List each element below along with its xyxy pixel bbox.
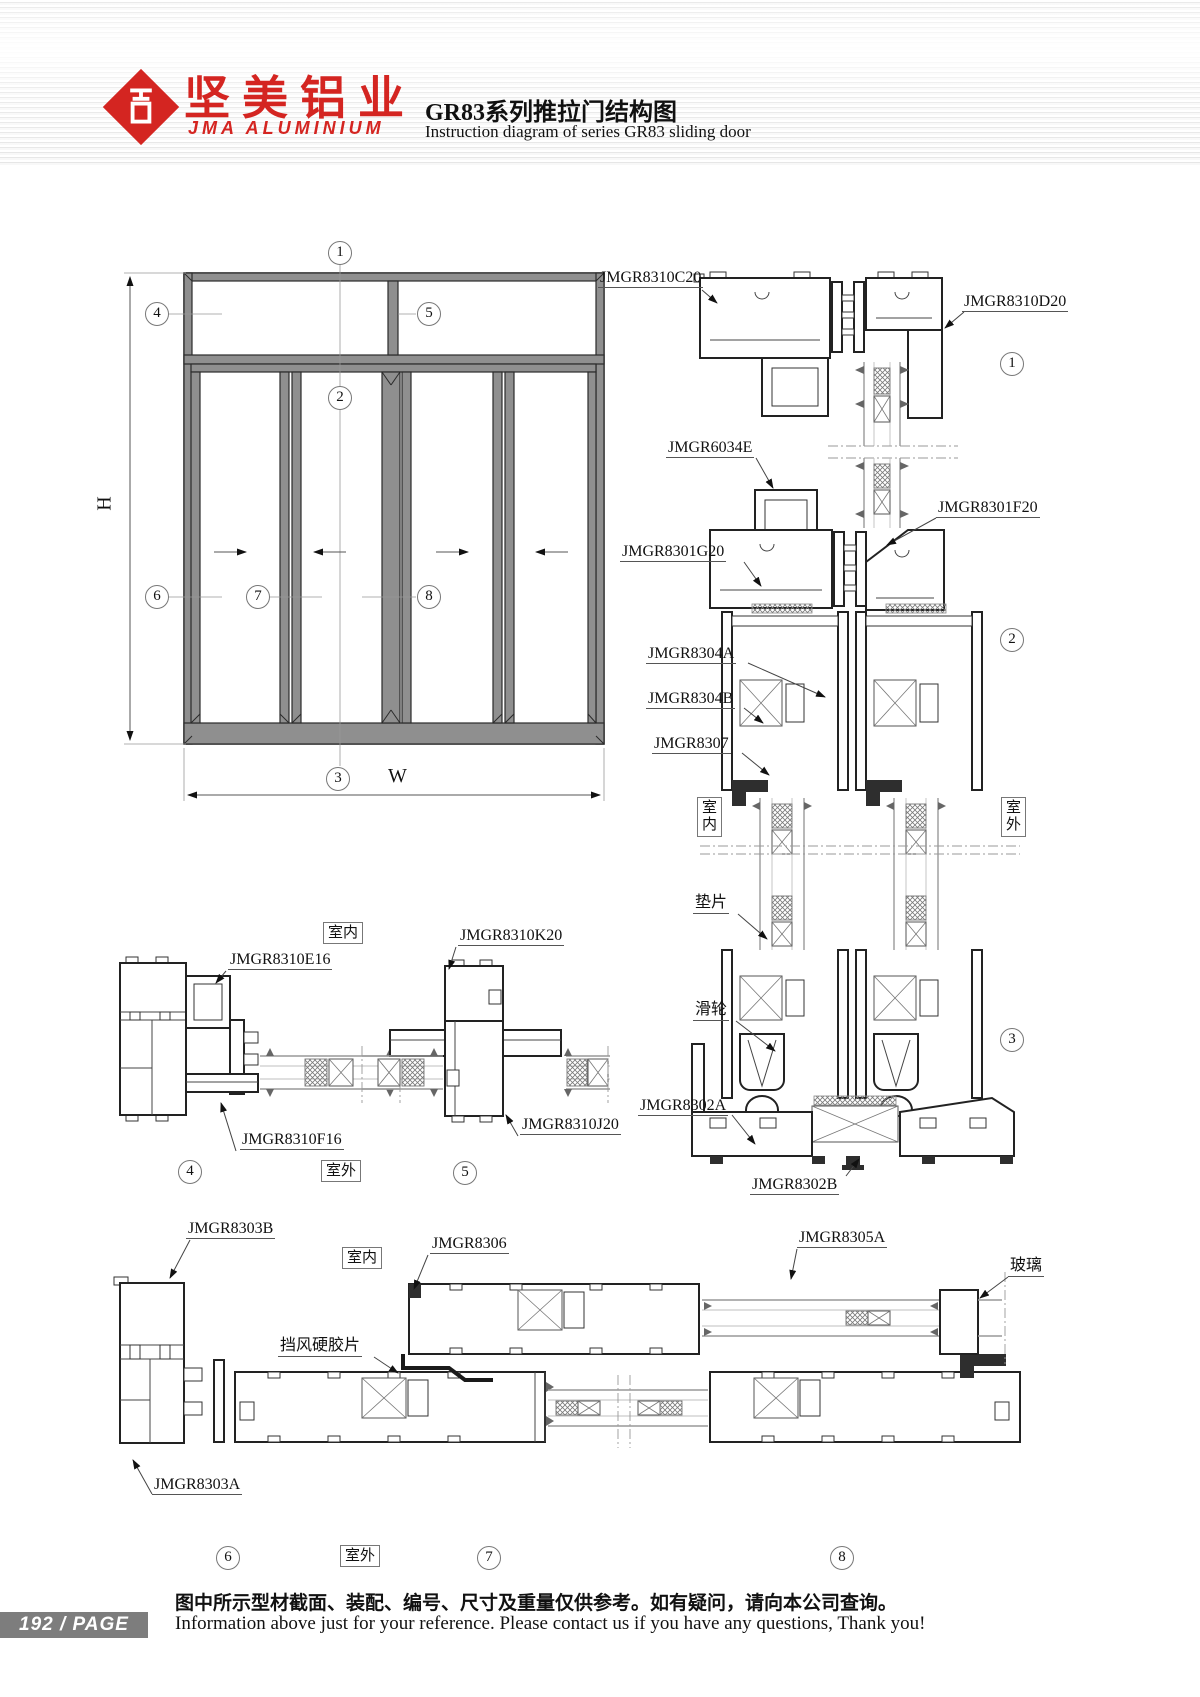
part-label-leaders [133, 290, 1008, 1494]
indoor-box-section2: 室内 [697, 797, 722, 837]
marker-8: 8 [417, 585, 441, 609]
section-marker-2: 2 [1000, 628, 1024, 652]
part-label-jmgr8306: JMGR8306 [430, 1235, 509, 1254]
part-label-jmgr8310e16: JMGR8310E16 [228, 951, 332, 970]
outdoor-box-section678: 室外 [340, 1545, 380, 1567]
outdoor-box-section2: 室外 [1001, 797, 1026, 837]
footer-note-english: Information above just for your referenc… [175, 1613, 925, 1635]
part-label-jmgr8301g20: JMGR8301G20 [620, 543, 726, 562]
section-marker-8: 8 [830, 1546, 854, 1570]
marker-4: 4 [145, 302, 169, 326]
page-number-badge: 192 / PAGE [0, 1612, 148, 1638]
part-label-jmgr8304b: JMGR8304B [646, 690, 735, 709]
section-marker-7: 7 [477, 1546, 501, 1570]
part-label-jmgr8310j20: JMGR8310J20 [520, 1116, 621, 1135]
dim-height-label: H [94, 496, 117, 510]
section-marker-3: 3 [1000, 1028, 1024, 1052]
section-marker-5: 5 [453, 1161, 477, 1185]
callout-wind-strip: 挡风硬胶片 [278, 1337, 362, 1357]
page-number-text: 192 / PAGE [0, 1612, 148, 1638]
dim-width-label: W [388, 765, 407, 788]
section-marker-4: 4 [178, 1160, 202, 1184]
callout-roller: 滑轮 [693, 1001, 729, 1021]
part-label-jmgr8302a: JMGR8302A [638, 1097, 728, 1116]
part-label-jmgr8310c20: JMGR8310C20 [598, 269, 703, 288]
callout-gasket: 垫片 [693, 894, 729, 914]
annotation-overlay [0, 0, 1200, 1697]
part-label-jmgr8310d20: JMGR8310D20 [962, 293, 1068, 312]
marker-5: 5 [417, 302, 441, 326]
indoor-box-section45: 室内 [323, 922, 363, 944]
marker-1: 1 [328, 241, 352, 265]
indoor-box-section678: 室内 [342, 1247, 382, 1269]
part-label-jmgr8305a: JMGR8305A [797, 1229, 887, 1248]
part-label-jmgr8310k20: JMGR8310K20 [458, 927, 564, 946]
section-marker-1: 1 [1000, 352, 1024, 376]
marker-2: 2 [328, 386, 352, 410]
marker-6: 6 [145, 585, 169, 609]
footer-note-chinese: 图中所示型材截面、装配、编号、尺寸及重量仅供参考。如有疑问，请向本公司查询。 [175, 1588, 897, 1615]
part-label-jmgr8302b: JMGR8302B [750, 1176, 839, 1195]
section-marker-6: 6 [216, 1546, 240, 1570]
front-view-dimensions [124, 264, 604, 801]
part-label-jmgr8304a: JMGR8304A [646, 645, 736, 664]
outdoor-box-section45: 室外 [321, 1160, 361, 1182]
marker-7: 7 [246, 585, 270, 609]
part-label-jmgr6034e: JMGR6034E [666, 439, 754, 458]
marker-3: 3 [326, 767, 350, 791]
part-label-jmgr8307: JMGR8307 [652, 735, 731, 754]
callout-glass: 玻璃 [1008, 1257, 1044, 1277]
part-label-jmgr8310f16: JMGR8310F16 [240, 1131, 344, 1150]
part-label-jmgr8303a: JMGR8303A [152, 1476, 242, 1495]
catalog-page: 坚美铝业 JMA ALUMINIUM GR83系列推拉门结构图 Instruct… [0, 0, 1200, 1697]
part-label-jmgr8303b: JMGR8303B [186, 1220, 275, 1239]
part-label-jmgr8301f20: JMGR8301F20 [936, 499, 1040, 518]
